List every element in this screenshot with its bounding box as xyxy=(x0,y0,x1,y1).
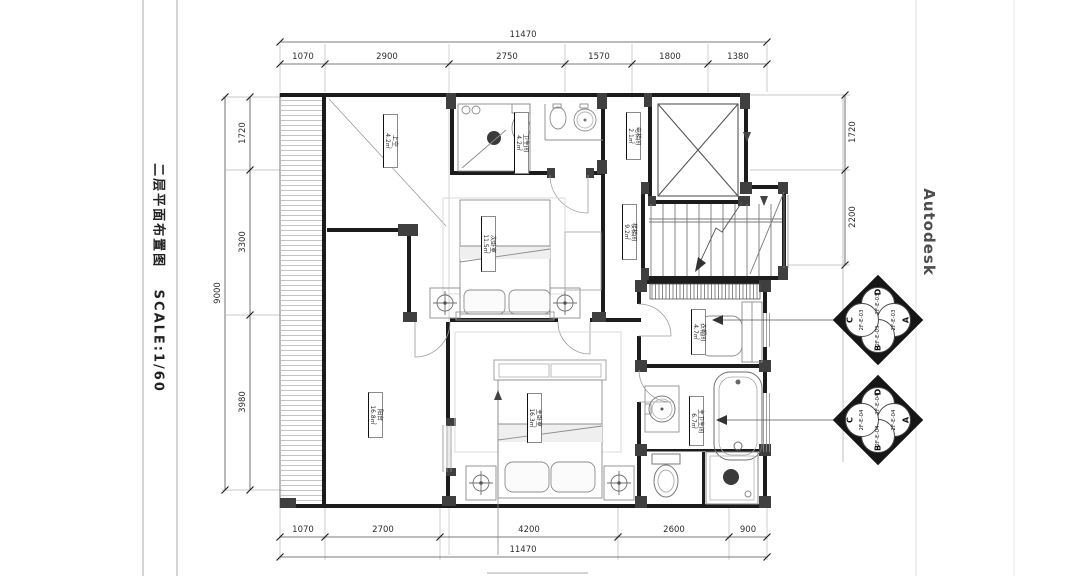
terrace-deck-hatch xyxy=(280,93,322,508)
room-label-master-bedroom: 主卧室16.3㎡ xyxy=(527,393,542,443)
elevation-id: 2F-E-03 xyxy=(875,293,881,314)
sheet-title-scale: SCALE:1/60 xyxy=(151,290,166,393)
dim-left-total: 9000 xyxy=(213,282,223,304)
room-label-void: 上空4.2㎡ xyxy=(383,114,398,168)
dim-top-seg: 2900 xyxy=(376,52,398,62)
dim-bottom-seg: 4200 xyxy=(518,525,540,535)
dim-left-seg: 3300 xyxy=(238,231,248,253)
room-label-cloakroom: 衣帽间4.7㎡ xyxy=(691,309,706,355)
room-area: 4.2㎡ xyxy=(515,135,522,151)
elevator-shaft xyxy=(658,104,738,196)
bathroom-top-fixtures xyxy=(458,104,603,171)
dim-right-seg: 2200 xyxy=(848,206,858,228)
quadrant-letter-d: D xyxy=(874,289,883,296)
elevation-id: 2F-E-04 xyxy=(875,393,881,414)
elevation-leaders xyxy=(712,315,843,425)
room-name: 卫生间 xyxy=(522,134,529,152)
room-name: 上空 xyxy=(391,135,398,147)
elevation-id: 2F-E-04 xyxy=(859,409,865,430)
room-area: 16.3㎡ xyxy=(528,408,535,427)
elevation-id: 2F-E-04 xyxy=(891,409,897,430)
room-label-stairwell: 楼梯间9.2㎡ xyxy=(622,204,637,260)
room-label-balcony: 阳台16.8㎡ xyxy=(368,392,383,438)
room-area: 16.8㎡ xyxy=(369,405,376,424)
dim-bottom-seg: 1070 xyxy=(292,525,314,535)
room-name: 主卫生间 xyxy=(697,409,704,433)
room-name: 次卧室 xyxy=(489,235,496,253)
room-label-bedroom2: 次卧室11.5㎡ xyxy=(481,216,496,272)
dim-bottom-seg: 900 xyxy=(740,525,756,535)
room-area: 2.1㎡ xyxy=(627,128,634,144)
dim-bottom-total: 11470 xyxy=(509,545,536,555)
quadrant-letter-c: C xyxy=(846,417,855,423)
room-name: 阳台 xyxy=(376,409,383,421)
sheet-title: 二层平面布置图 SCALE:1/60 xyxy=(151,163,170,393)
room-area: 11.5㎡ xyxy=(482,234,489,253)
room-label-bathroom: 卫生间4.2㎡ xyxy=(514,112,529,174)
dim-left-seg: 3980 xyxy=(238,391,248,413)
sheet-title-name: 二层平面布置图 xyxy=(151,163,166,268)
quadrant-letter-c: C xyxy=(846,317,855,323)
room-label-master-bathroom: 主卫生间6.7㎡ xyxy=(689,396,704,446)
dim-right-seg: 1720 xyxy=(848,121,858,143)
room-area: 4.2㎡ xyxy=(384,133,391,149)
room-area: 9.2㎡ xyxy=(623,224,630,240)
room-area: 6.7㎡ xyxy=(690,413,697,429)
elevation-id: 2F-E-03 xyxy=(859,309,865,330)
dim-top-seg: 1380 xyxy=(727,52,749,62)
dim-bottom-seg: 2600 xyxy=(663,525,685,535)
dim-top-seg: 1800 xyxy=(659,52,681,62)
quadrant-letter-a: A xyxy=(902,317,911,323)
bedroom1-furniture xyxy=(430,198,601,320)
elevation-id: 2F-E-03 xyxy=(875,325,881,346)
dim-left-seg: 1720 xyxy=(238,122,248,144)
dim-top-seg: 1070 xyxy=(292,52,314,62)
floor-plan-sheet: 二层平面布置图 SCALE:1/60 Autodesk 11470 1070 2… xyxy=(0,0,1074,576)
elevation-id: 2F-E-04 xyxy=(875,425,881,446)
quadrant-letter-a: A xyxy=(902,417,911,423)
dim-bottom-seg: 2700 xyxy=(372,525,394,535)
quadrant-letter-d: D xyxy=(874,389,883,396)
elevation-marker-2F-E-04: 2F-E-04 2F-E-04 2F-E-04 2F-E-04 A B C D xyxy=(830,372,926,468)
elevation-id: 2F-E-03 xyxy=(891,309,897,330)
autodesk-watermark: Autodesk xyxy=(920,188,938,276)
room-name: 电梯间 xyxy=(634,127,641,145)
dim-top-seg: 2750 xyxy=(496,52,518,62)
quadrant-letter-b: B xyxy=(874,345,883,351)
room-name: 楼梯间 xyxy=(630,223,637,241)
room-name: 主卧室 xyxy=(535,409,542,427)
room-label-elevator: 电梯间2.1㎡ xyxy=(626,112,641,160)
room-area: 4.7㎡ xyxy=(692,324,699,340)
dim-top-seg: 1570 xyxy=(588,52,610,62)
room-name: 衣帽间 xyxy=(699,323,706,341)
elevation-marker-2F-E-03: 2F-E-03 2F-E-03 2F-E-03 2F-E-03 A B C D xyxy=(830,272,926,368)
quadrant-letter-b: B xyxy=(874,445,883,451)
dim-top-total: 11470 xyxy=(509,30,536,40)
cloakroom-fixtures xyxy=(650,284,762,362)
